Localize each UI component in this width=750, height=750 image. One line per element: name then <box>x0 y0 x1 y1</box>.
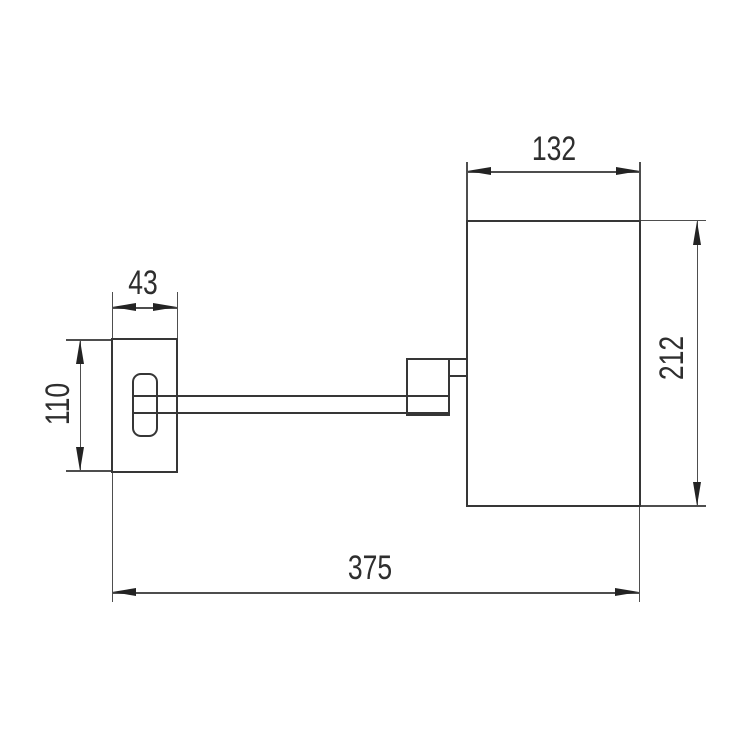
arrowhead-110-bottom-icon <box>76 447 84 471</box>
dim-label-body-height: 212 <box>655 336 689 380</box>
arrowhead-132-left-icon <box>467 167 491 175</box>
ext-line-375-left <box>112 473 114 602</box>
mounting-slot-outline <box>132 373 158 437</box>
dim-line-132 <box>467 171 640 173</box>
arm-bottom-line <box>133 412 449 414</box>
hinge-block-outline <box>406 358 450 416</box>
arrowhead-43-right-icon <box>153 303 177 311</box>
arrowhead-212-bottom-icon <box>693 482 701 506</box>
arrowhead-375-left-icon <box>112 588 136 596</box>
ext-line-43-right <box>177 292 179 338</box>
mirror-body-outline <box>466 220 641 507</box>
technical-drawing-canvas: 132 212 43 110 375 <box>0 0 750 750</box>
arrowhead-43-left-icon <box>112 303 136 311</box>
dim-line-212 <box>697 221 699 505</box>
ext-line-43-left <box>112 292 114 338</box>
ext-line-110-top <box>66 339 111 341</box>
arm-top-line <box>133 395 449 397</box>
arrowhead-110-top-icon <box>76 340 84 364</box>
arrowhead-212-top-icon <box>693 221 701 245</box>
dim-line-375 <box>112 592 639 594</box>
hinge-bracket-outline <box>448 358 468 377</box>
arrowhead-375-right-icon <box>615 588 639 596</box>
dim-label-overall-projection: 375 <box>348 551 392 585</box>
dim-label-body-width: 132 <box>532 132 576 166</box>
dim-label-plate-height: 110 <box>41 383 75 425</box>
ext-line-110-bottom <box>66 470 111 472</box>
dim-label-plate-width: 43 <box>128 266 158 300</box>
arrowhead-132-right-icon <box>616 167 640 175</box>
